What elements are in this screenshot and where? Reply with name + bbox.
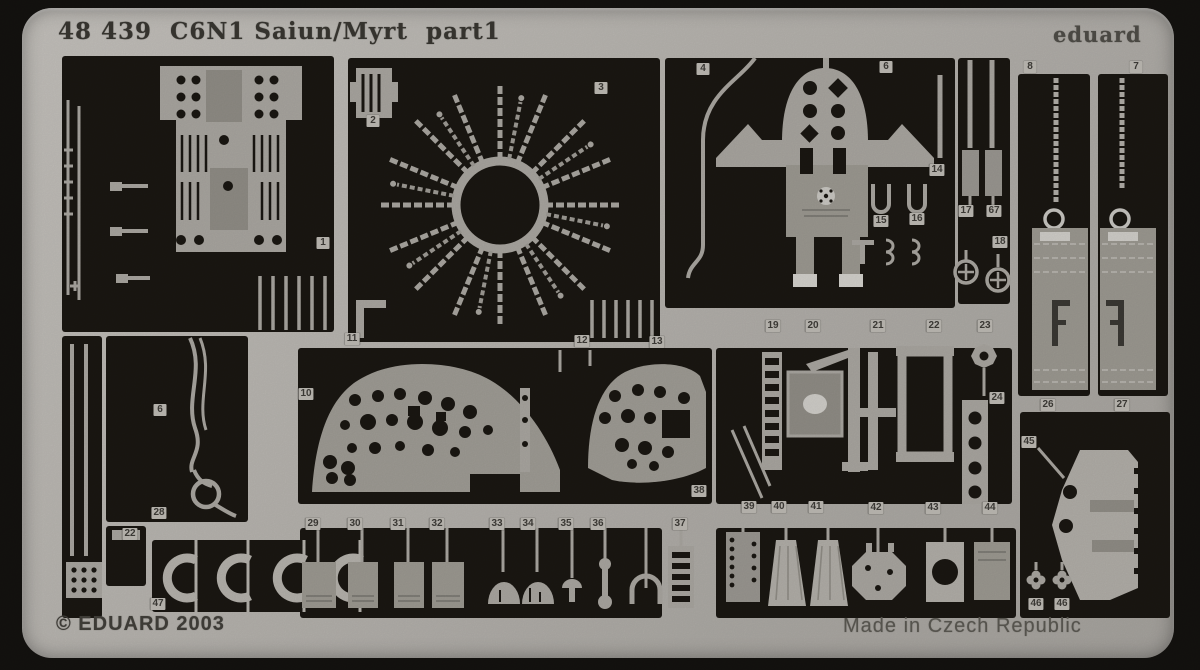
copyright-text: © EDUARD 2003 — [56, 613, 225, 636]
photo-of-etch-fret: 48 439 C6N1 Saiun/Myrt part1 eduard © ED… — [0, 0, 1200, 670]
brand-text: eduard — [1053, 22, 1142, 47]
made-in-text: Made in Czech Republic — [843, 615, 1082, 638]
sheet-title-text: 48 439 C6N1 Saiun/Myrt part1 — [58, 18, 501, 45]
etch-artwork — [0, 0, 1200, 670]
